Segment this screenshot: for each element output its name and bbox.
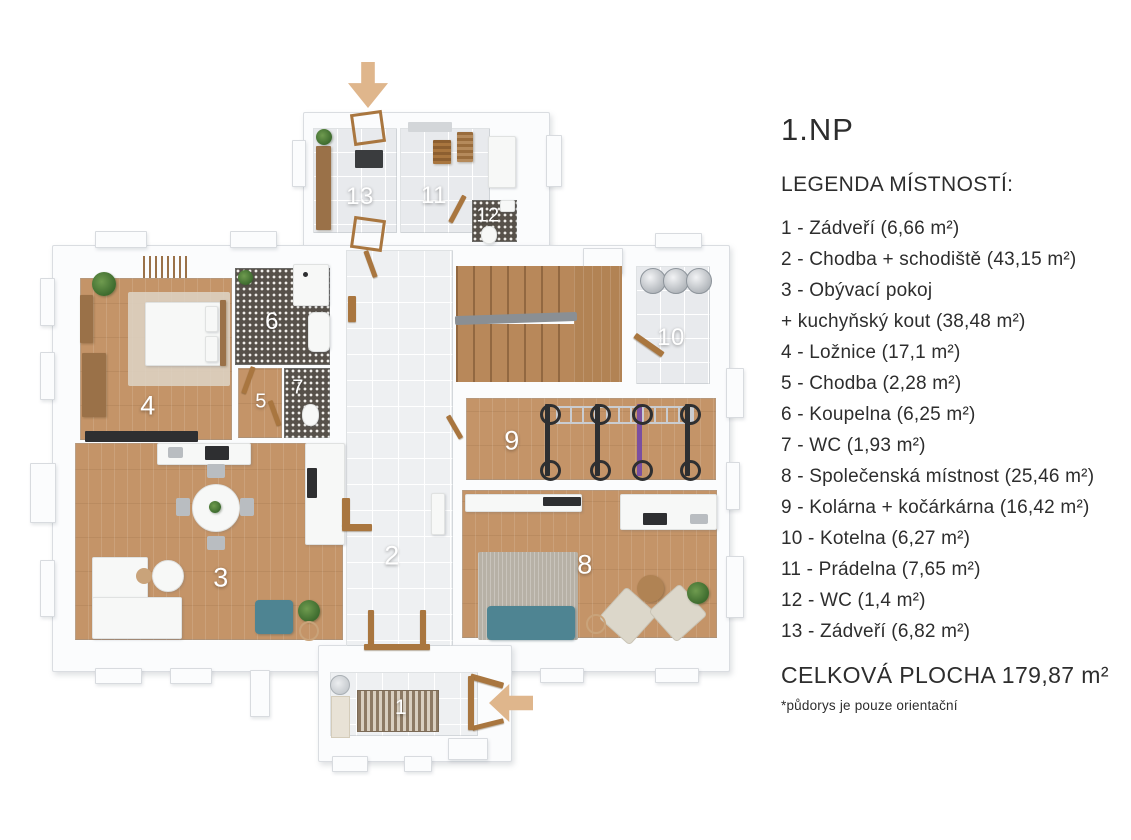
room-label-4: 4 <box>140 391 156 422</box>
cooktop <box>205 446 229 460</box>
legend-line-6: 6 - Koupelna (6,25 m²) <box>781 399 1094 430</box>
window-sill <box>540 668 584 683</box>
room-label-9: 9 <box>504 426 520 457</box>
open-door-leaf <box>431 493 445 535</box>
wardrobe <box>82 353 106 417</box>
boiler-tank <box>686 268 712 294</box>
window-sill <box>546 135 562 187</box>
counter-room11 <box>488 136 516 188</box>
dining-chair <box>240 498 254 516</box>
bathtub <box>308 312 330 352</box>
window-sill <box>40 352 55 400</box>
tv-cabinet-bedroom <box>85 431 198 442</box>
table-centerpiece <box>209 501 221 513</box>
entry-door-right-post <box>468 676 474 730</box>
sink-room1 <box>330 675 350 695</box>
stair-flight-lower <box>456 324 574 382</box>
window-sill <box>655 233 702 248</box>
doormat-room13 <box>355 150 383 168</box>
corridor-2-floor <box>346 250 453 646</box>
legend-line-11: 11 - Prádelna (7,65 m²) <box>781 554 1094 585</box>
bicycle-wheel <box>632 460 653 481</box>
stair-flight-upper <box>456 266 574 316</box>
door-13-corridor <box>350 216 386 252</box>
room-label-13: 13 <box>346 183 374 211</box>
double-door-post <box>420 610 426 646</box>
laundry-basket <box>457 132 473 162</box>
plant-room13 <box>316 129 332 145</box>
bed-pillow <box>205 336 218 362</box>
laundry-basket <box>433 140 451 164</box>
bed-pillow <box>205 306 218 332</box>
floor-clock-living <box>299 621 319 641</box>
room-label-10: 10 <box>657 324 685 352</box>
floor-plan: 1 2 3 4 5 6 7 8 9 10 11 12 13 <box>0 0 770 800</box>
floor-clock-room8 <box>586 614 606 634</box>
plant-bathroom <box>238 270 253 285</box>
exterior-step <box>448 738 488 760</box>
legend-heading: LEGENDA MÍSTNOSTÍ: <box>781 173 1013 197</box>
window-sill <box>95 231 147 248</box>
entry-door-top <box>350 110 386 146</box>
round-table-room8 <box>637 575 664 602</box>
room-label-1: 1 <box>395 696 407 720</box>
shelf-room11 <box>408 122 452 132</box>
oven <box>307 468 317 498</box>
room-label-7: 7 <box>292 377 304 400</box>
coffee-table <box>152 560 184 592</box>
legend-line-3: 3 - Obývací pokoj <box>781 275 1094 306</box>
stair-landing <box>574 266 622 382</box>
plant-living <box>298 600 320 622</box>
dining-chair <box>207 536 225 550</box>
room-label-8: 8 <box>577 550 593 581</box>
double-door-post <box>368 610 374 646</box>
legend-room-list: 1 - Zádveří (6,66 m²) 2 - Chodba + schod… <box>781 213 1094 647</box>
corridor-bench <box>342 524 372 531</box>
room-label-5: 5 <box>255 391 267 414</box>
plant-bedroom <box>92 272 116 296</box>
legend-line-13: 13 - Zádveří (6,82 m²) <box>781 616 1094 647</box>
kitchen-sink <box>168 447 183 458</box>
kitchenette-sink <box>690 514 708 524</box>
room-7-floor <box>284 368 330 438</box>
side-table <box>136 568 152 584</box>
window-sill <box>250 670 270 717</box>
legend-line-1: 1 - Zádveří (6,66 m²) <box>781 213 1094 244</box>
bedroom-desk <box>80 295 93 343</box>
floor-plan-page: { "legend": { "floor_title": "1.NP", "he… <box>0 0 1131 840</box>
room-label-6: 6 <box>265 308 279 336</box>
bicycle-wheel <box>540 404 561 425</box>
bathroom-vanity <box>293 264 329 306</box>
window-sill <box>726 462 740 510</box>
legend-footnote: *půdorys je pouze orientační <box>781 698 958 713</box>
corridor-bench <box>348 296 356 322</box>
bed-headboard <box>220 300 226 366</box>
room-label-11: 11 <box>421 182 447 210</box>
window-sill <box>726 556 744 618</box>
window-sill <box>40 278 55 326</box>
slat-divider <box>143 256 187 278</box>
bathroom-faucet <box>303 272 308 277</box>
wall-ladder-rack <box>556 406 694 424</box>
armchair-teal-living <box>255 600 293 634</box>
entrance-arrow-top <box>348 62 388 108</box>
room-label-12: 12 <box>476 205 499 228</box>
window-sill <box>30 463 56 523</box>
bicycle-wheel <box>680 460 701 481</box>
double-door-bar <box>364 644 430 650</box>
room-label-2: 2 <box>384 541 400 572</box>
window-sill <box>332 756 368 772</box>
legend-line-5: 5 - Chodba (2,28 m²) <box>781 368 1094 399</box>
bicycle-wheel <box>680 404 701 425</box>
bicycle-wheel <box>590 404 611 425</box>
window-sill <box>230 231 277 248</box>
legend-line-12: 12 - WC (1,4 m²) <box>781 585 1094 616</box>
legend-line-10: 10 - Kotelna (6,27 m²) <box>781 523 1094 554</box>
cabinet-room1 <box>331 696 350 738</box>
window-sill <box>292 140 306 187</box>
legend-line-8: 8 - Společenská místnost (25,46 m²) <box>781 461 1094 492</box>
toilet-room12 <box>481 226 497 244</box>
sink-room12 <box>500 200 515 212</box>
kitchenette-cooktop <box>643 513 667 525</box>
dining-chair <box>207 464 225 478</box>
plant-room8 <box>687 582 709 604</box>
toilet-room7 <box>302 404 319 426</box>
tv-room8 <box>543 497 581 506</box>
floor-title: 1.NP <box>781 112 854 148</box>
legend-line-2: 2 - Chodba + schodiště (43,15 m²) <box>781 244 1094 275</box>
window-sill <box>170 668 212 684</box>
corridor-bench <box>342 498 350 526</box>
bicycle-wheel <box>590 460 611 481</box>
legend-line-7: 7 - WC (1,93 m²) <box>781 430 1094 461</box>
window-sill <box>404 756 432 772</box>
window-sill <box>655 668 699 683</box>
bicycle-wheel <box>540 460 561 481</box>
legend-line-3b: + kuchyňský kout (38,48 m²) <box>781 306 1094 337</box>
dining-chair <box>176 498 190 516</box>
window-sill <box>726 368 744 418</box>
cabinet-room13 <box>316 146 331 230</box>
window-sill <box>40 560 55 617</box>
sofa-teal-room8 <box>487 606 575 640</box>
legend-line-9: 9 - Kolárna + kočárkárna (16,42 m²) <box>781 492 1094 523</box>
window-sill <box>95 668 142 684</box>
total-area: CELKOVÁ PLOCHA 179,87 m² <box>781 662 1109 689</box>
sofa-main <box>92 597 182 639</box>
room-label-3: 3 <box>213 563 229 594</box>
legend-line-4: 4 - Ložnice (17,1 m²) <box>781 337 1094 368</box>
kitchenette-room8 <box>620 494 717 530</box>
bicycle-wheel <box>632 404 653 425</box>
